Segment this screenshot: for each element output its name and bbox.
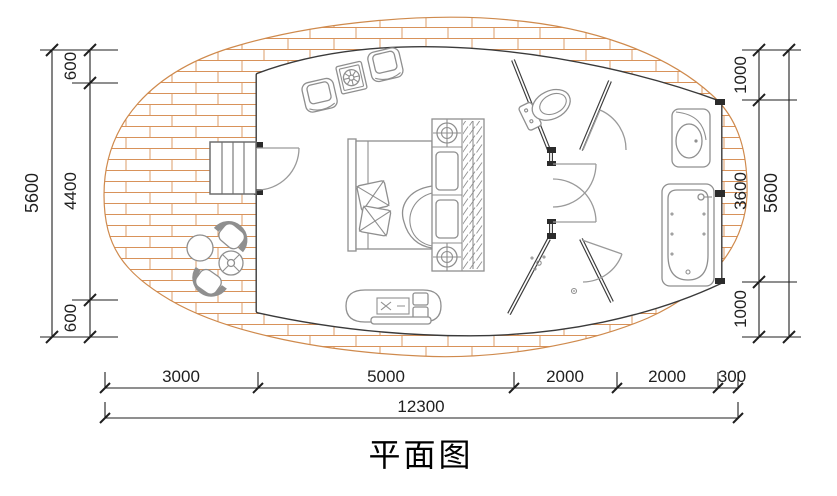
dim-left-outer: 5600 <box>22 173 42 213</box>
armchair <box>366 46 404 82</box>
pillow <box>359 206 391 236</box>
dim-left-600-bottom: 600 <box>61 304 80 332</box>
side-table <box>336 61 368 94</box>
dim-left-600-top: 600 <box>61 52 80 80</box>
dimension-right: 1000 3600 1000 5600 <box>731 44 801 343</box>
double-bed <box>348 139 432 251</box>
dim-left-4400: 4400 <box>61 172 80 210</box>
washbasin <box>672 109 710 167</box>
wardrobe <box>463 121 483 269</box>
floor-plan-canvas: 5600 600 4400 600 1000 3600 1000 5600 30… <box>0 0 837 496</box>
drawing-title: 平面图 <box>368 437 473 473</box>
dimension-bottom: 3000 5000 2000 2000 300 12300 <box>100 367 746 423</box>
dim-bottom-2000-b: 2000 <box>648 367 686 386</box>
dim-bottom-300: 300 <box>718 367 746 386</box>
dim-right-outer: 5600 <box>761 173 781 213</box>
armchair <box>301 77 339 113</box>
dim-bottom-2000-a: 2000 <box>546 367 584 386</box>
floor-plan-page: 5600 600 4400 600 1000 3600 1000 5600 30… <box>0 0 837 496</box>
dim-bottom-5000: 5000 <box>367 367 405 386</box>
tv-cabinet <box>346 290 441 324</box>
outdoor-table <box>187 235 213 261</box>
dim-bottom-3000: 3000 <box>162 367 200 386</box>
wardrobe-unit <box>432 119 484 271</box>
bathtub <box>662 184 714 286</box>
dim-right-1000-bottom: 1000 <box>731 290 750 328</box>
stairs <box>210 142 256 194</box>
dim-bottom-total: 12300 <box>397 397 444 416</box>
dim-right-1000-top: 1000 <box>731 56 750 94</box>
dim-right-3600: 3600 <box>731 172 750 210</box>
parasol-table <box>219 251 243 275</box>
